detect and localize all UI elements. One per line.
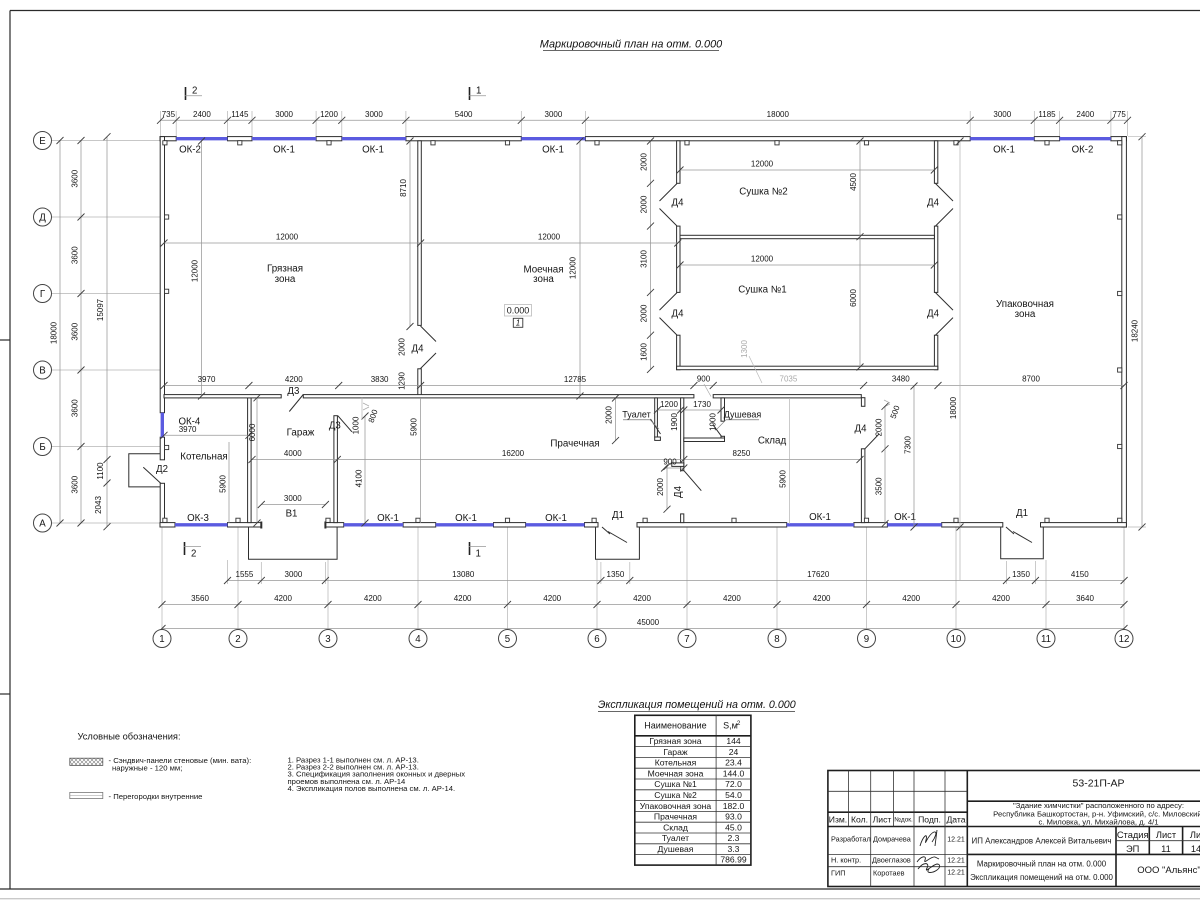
svg-text:4150: 4150 [1071, 570, 1089, 579]
svg-text:12.21: 12.21 [947, 858, 965, 865]
svg-text:2000: 2000 [640, 195, 649, 213]
svg-text:72.0: 72.0 [725, 779, 742, 789]
svg-text:ИП Александров Алексей Виталье: ИП Александров Алексей Витальевич [972, 837, 1112, 846]
svg-text:ОК-1: ОК-1 [377, 513, 399, 524]
svg-text:4200: 4200 [274, 594, 292, 603]
svg-text:Лист: Лист [1156, 830, 1177, 840]
svg-text:4200: 4200 [364, 594, 382, 603]
svg-text:5: 5 [505, 634, 510, 645]
svg-text:Д4: Д4 [927, 308, 940, 319]
svg-text:зона: зона [533, 274, 554, 285]
svg-text:Прачечная: Прачечная [550, 439, 599, 450]
svg-text:Д4: Д4 [672, 308, 685, 319]
svg-text:Кол.: Кол. [851, 815, 868, 825]
svg-text:12000: 12000 [191, 259, 200, 282]
svg-text:Д4: Д4 [672, 197, 685, 208]
svg-text:1000: 1000 [352, 416, 361, 434]
svg-text:1100: 1100 [96, 462, 105, 480]
svg-text:Д1: Д1 [1016, 508, 1028, 519]
svg-text:18000: 18000 [949, 396, 958, 419]
svg-text:4200: 4200 [454, 594, 472, 603]
svg-text:Котельная: Котельная [180, 452, 227, 463]
svg-text:5900: 5900 [219, 475, 228, 493]
svg-text:Двоеглазов: Двоеглазов [872, 856, 911, 865]
svg-text:Гараж: Гараж [663, 747, 688, 757]
svg-text:№док.: №док. [894, 817, 913, 824]
svg-text:12000: 12000 [751, 160, 774, 169]
svg-text:12000: 12000 [538, 233, 561, 242]
svg-text:2: 2 [192, 86, 197, 97]
svg-text:Условные обозначения:: Условные обозначения: [78, 732, 181, 742]
svg-text:786.99: 786.99 [720, 854, 747, 864]
svg-text:5900: 5900 [410, 418, 419, 436]
svg-text:Изм.: Изм. [829, 815, 847, 825]
svg-text:45000: 45000 [637, 618, 660, 627]
svg-text:Склад: Склад [758, 436, 787, 447]
svg-text:Упаковочная зона: Упаковочная зона [640, 801, 712, 811]
svg-text:6: 6 [594, 634, 599, 645]
svg-text:93.0: 93.0 [725, 812, 742, 822]
svg-text:Д3: Д3 [329, 421, 341, 432]
svg-text:1900: 1900 [709, 413, 718, 431]
svg-text:Подп.: Подп. [918, 815, 941, 825]
svg-text:18000: 18000 [50, 321, 59, 344]
svg-text:53-21П-АР: 53-21П-АР [1073, 778, 1125, 790]
svg-text:ОК-2: ОК-2 [179, 144, 201, 155]
svg-text:Туалет: Туалет [662, 833, 689, 843]
svg-text:500: 500 [889, 404, 902, 420]
svg-text:144.0: 144.0 [723, 768, 745, 778]
svg-text:11: 11 [1161, 844, 1171, 854]
svg-text:1350: 1350 [1012, 570, 1030, 579]
svg-text:4200: 4200 [633, 594, 651, 603]
svg-text:12000: 12000 [276, 233, 299, 242]
svg-text:3000: 3000 [284, 494, 302, 503]
svg-text:3970: 3970 [198, 375, 216, 384]
svg-text:2000: 2000 [656, 478, 665, 496]
svg-text:Склад: Склад [663, 822, 688, 832]
svg-text:Моечная зона: Моечная зона [648, 768, 704, 778]
svg-text:11: 11 [1041, 634, 1051, 645]
svg-text:4. Экспликация полов выполнена: 4. Экспликация полов выполнена см. л. АР… [288, 784, 456, 793]
svg-text:ЭП: ЭП [1126, 844, 1139, 854]
svg-text:ОК-1: ОК-1 [273, 144, 295, 155]
svg-text:А: А [39, 519, 46, 530]
svg-text:7300: 7300 [904, 436, 913, 454]
svg-text:1730: 1730 [693, 400, 711, 409]
svg-text:3600: 3600 [71, 169, 80, 187]
svg-text:3.3: 3.3 [728, 844, 740, 854]
svg-text:Дата: Дата [946, 815, 965, 825]
svg-text:4200: 4200 [285, 375, 303, 384]
svg-text:13080: 13080 [452, 570, 475, 579]
svg-text:ГИП: ГИП [831, 869, 845, 878]
svg-text:3500: 3500 [875, 477, 884, 495]
svg-text:Д: Д [39, 213, 46, 224]
svg-text:1200: 1200 [660, 400, 678, 409]
svg-text:S,м: S,м [723, 721, 738, 731]
svg-text:Лист: Лист [873, 815, 892, 825]
svg-text:5400: 5400 [455, 110, 473, 119]
svg-text:1350: 1350 [607, 570, 625, 579]
svg-text:1200: 1200 [320, 110, 338, 119]
svg-text:3000: 3000 [993, 110, 1011, 119]
svg-text:наружные - 120 мм;: наружные - 120 мм; [112, 763, 182, 772]
svg-text:Душевая: Душевая [724, 410, 762, 420]
svg-text:2000: 2000 [875, 418, 884, 436]
svg-text:Д4: Д4 [412, 344, 425, 355]
svg-text:24: 24 [729, 747, 739, 757]
svg-text:4200: 4200 [543, 594, 561, 603]
svg-text:с. Миловка, ул. Михайлова, д.: с. Миловка, ул. Михайлова, д. 4/1 [1038, 818, 1158, 827]
svg-text:ОК-1: ОК-1 [455, 513, 477, 524]
svg-text:3100: 3100 [640, 250, 649, 268]
svg-text:Лист: Лист [1190, 830, 1200, 840]
svg-text:3480: 3480 [892, 375, 910, 384]
svg-text:775: 775 [1113, 110, 1127, 119]
svg-text:1290: 1290 [398, 372, 407, 390]
svg-text:5900: 5900 [779, 470, 788, 488]
svg-text:2000: 2000 [398, 338, 407, 356]
svg-text:Душевая: Душевая [658, 844, 694, 854]
svg-text:15097: 15097 [96, 298, 105, 321]
svg-text:900: 900 [697, 375, 711, 384]
svg-text:1: 1 [516, 319, 520, 328]
svg-text:182.0: 182.0 [723, 801, 745, 811]
svg-text:4200: 4200 [723, 594, 741, 603]
svg-text:23.4: 23.4 [725, 758, 742, 768]
svg-text:Д3: Д3 [287, 386, 299, 397]
svg-text:3970: 3970 [179, 425, 197, 434]
svg-text:Коротаев: Коротаев [873, 869, 905, 878]
svg-text:Маркировочный план на отм. 0.0: Маркировочный план на отм. 0.000 [977, 860, 1107, 869]
svg-text:3600: 3600 [71, 475, 80, 493]
svg-text:2: 2 [191, 549, 196, 560]
svg-text:2400: 2400 [1076, 110, 1094, 119]
svg-text:Прачечная: Прачечная [654, 812, 698, 822]
svg-text:Домрачева: Домрачева [873, 835, 912, 844]
svg-text:18000: 18000 [767, 110, 790, 119]
svg-text:ООО "Альянс": ООО "Альянс" [1137, 865, 1200, 876]
svg-text:Наименование: Наименование [644, 721, 706, 731]
svg-text:0.000: 0.000 [507, 305, 530, 315]
svg-text:14: 14 [1191, 844, 1200, 854]
svg-text:Туалет: Туалет [622, 410, 650, 420]
svg-text:16200: 16200 [502, 449, 525, 458]
svg-text:Д1: Д1 [612, 510, 624, 521]
svg-text:ОК-2: ОК-2 [1072, 144, 1094, 155]
svg-text:17620: 17620 [807, 570, 830, 579]
svg-text:Разработал: Разработал [831, 835, 871, 844]
svg-text:Н. контр.: Н. контр. [831, 856, 861, 865]
svg-text:3640: 3640 [1076, 594, 1094, 603]
svg-text:2000: 2000 [605, 406, 614, 424]
svg-text:3000: 3000 [275, 110, 293, 119]
svg-text:Г: Г [40, 289, 46, 300]
svg-text:3560: 3560 [191, 594, 209, 603]
svg-text:12: 12 [1119, 634, 1130, 645]
svg-text:ОК-3: ОК-3 [187, 513, 209, 524]
svg-text:ОК-1: ОК-1 [993, 144, 1015, 155]
svg-text:ОК-1: ОК-1 [545, 513, 567, 524]
svg-text:В: В [39, 366, 45, 377]
svg-text:2000: 2000 [640, 153, 649, 171]
svg-text:45.0: 45.0 [725, 822, 742, 832]
svg-text:Грязная зона: Грязная зона [649, 736, 701, 746]
svg-text:3830: 3830 [371, 375, 389, 384]
svg-text:Котельная: Котельная [655, 758, 697, 768]
svg-text:зона: зона [275, 274, 296, 285]
svg-text:12000: 12000 [569, 256, 578, 279]
svg-text:900: 900 [663, 458, 677, 467]
svg-text:Е: Е [39, 136, 46, 147]
svg-text:ОК-1: ОК-1 [809, 512, 831, 523]
svg-text:54.0: 54.0 [725, 790, 742, 800]
svg-text:3600: 3600 [71, 322, 80, 340]
svg-text:Сушка №2: Сушка №2 [654, 790, 697, 800]
svg-text:12785: 12785 [564, 375, 587, 384]
svg-text:1555: 1555 [236, 570, 254, 579]
svg-text:Экспликация помещений на отм.: Экспликация помещений на отм. 0.000 [970, 873, 1113, 882]
svg-text:7035: 7035 [780, 375, 798, 384]
svg-text:Б: Б [39, 442, 45, 453]
svg-text:Д4: Д4 [855, 424, 868, 435]
svg-text:10: 10 [951, 634, 962, 645]
svg-text:4200: 4200 [902, 594, 920, 603]
svg-text:3: 3 [325, 634, 330, 645]
svg-text:2000: 2000 [640, 304, 649, 322]
svg-text:4500: 4500 [849, 173, 858, 191]
svg-text:Стадия: Стадия [1117, 830, 1149, 840]
svg-text:1300: 1300 [740, 340, 749, 358]
svg-text:3600: 3600 [71, 246, 80, 264]
svg-text:Гараж: Гараж [287, 428, 315, 439]
svg-text:8: 8 [774, 634, 779, 645]
svg-text:8710: 8710 [399, 179, 408, 197]
svg-text:735: 735 [162, 110, 176, 119]
svg-text:7: 7 [684, 634, 689, 645]
svg-text:4: 4 [415, 634, 421, 645]
svg-text:6000: 6000 [248, 423, 257, 441]
svg-text:12000: 12000 [751, 255, 774, 264]
svg-text:1: 1 [476, 549, 481, 560]
svg-text:3000: 3000 [545, 110, 563, 119]
svg-text:Сушка №1: Сушка №1 [654, 779, 697, 789]
svg-text:2: 2 [737, 720, 741, 727]
svg-text:2: 2 [235, 634, 240, 645]
svg-text:18240: 18240 [1131, 319, 1140, 342]
svg-text:800: 800 [367, 408, 380, 424]
svg-text:1900: 1900 [670, 413, 679, 431]
svg-text:2.3: 2.3 [728, 833, 740, 843]
svg-text:4200: 4200 [813, 594, 831, 603]
svg-text:ОК-1: ОК-1 [894, 512, 916, 523]
svg-text:Сушка №1: Сушка №1 [738, 285, 786, 296]
svg-text:6000: 6000 [849, 289, 858, 307]
svg-text:зона: зона [1015, 309, 1036, 320]
svg-text:4200: 4200 [992, 594, 1010, 603]
svg-text:1: 1 [159, 634, 164, 645]
svg-text:ОК-1: ОК-1 [542, 144, 564, 155]
svg-text:1145: 1145 [231, 110, 249, 119]
svg-text:4100: 4100 [355, 469, 364, 487]
svg-text:9: 9 [864, 634, 869, 645]
svg-text:3600: 3600 [71, 399, 80, 417]
svg-text:1: 1 [476, 86, 481, 97]
svg-text:144: 144 [726, 736, 741, 746]
svg-text:Сушка №2: Сушка №2 [739, 187, 787, 198]
svg-text:8700: 8700 [1022, 375, 1040, 384]
svg-text:1185: 1185 [1038, 110, 1056, 119]
svg-text:8250: 8250 [733, 449, 751, 458]
svg-text:4000: 4000 [284, 449, 302, 458]
svg-text:3000: 3000 [365, 110, 383, 119]
svg-text:Экспликация помещений на отм.: Экспликация помещений на отм. 0.000 [598, 699, 796, 711]
svg-text:12.21: 12.21 [947, 870, 965, 877]
svg-text:1600: 1600 [640, 343, 649, 361]
svg-text:Д4: Д4 [673, 485, 684, 498]
svg-text:2400: 2400 [193, 110, 211, 119]
svg-text:Маркировочный план на отм. 0.0: Маркировочный план на отм. 0.000 [540, 39, 722, 51]
svg-text:Д2: Д2 [156, 464, 168, 475]
svg-text:3000: 3000 [285, 570, 303, 579]
svg-text:12.21: 12.21 [947, 837, 965, 844]
svg-text:В1: В1 [286, 509, 298, 520]
svg-text:Д4: Д4 [927, 197, 940, 208]
svg-text:2043: 2043 [94, 496, 103, 514]
svg-text:- Перегородки внутренние: - Перегородки внутренние [109, 792, 203, 801]
svg-text:ОК-1: ОК-1 [362, 144, 384, 155]
